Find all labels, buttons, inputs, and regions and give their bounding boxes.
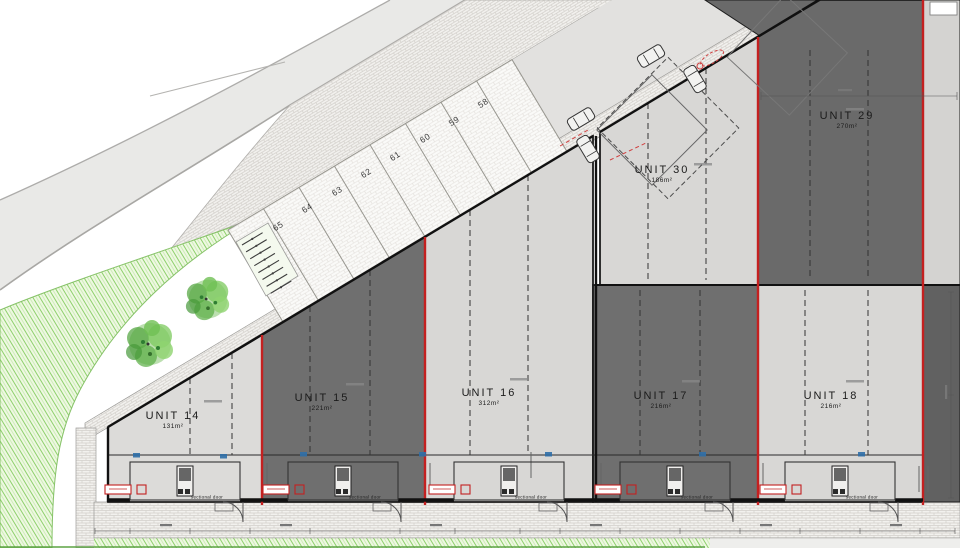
bottom-verge xyxy=(0,538,960,548)
site-plan-drawing xyxy=(0,0,960,548)
side-walkway xyxy=(76,428,96,548)
neighbor-building-outline xyxy=(930,2,957,15)
bottom-walkway xyxy=(94,502,960,538)
unit-29-region xyxy=(758,0,923,285)
site-plan-canvas: UNIT 14 131m² UNIT 15 221m² UNIT 16 312m… xyxy=(0,0,960,548)
